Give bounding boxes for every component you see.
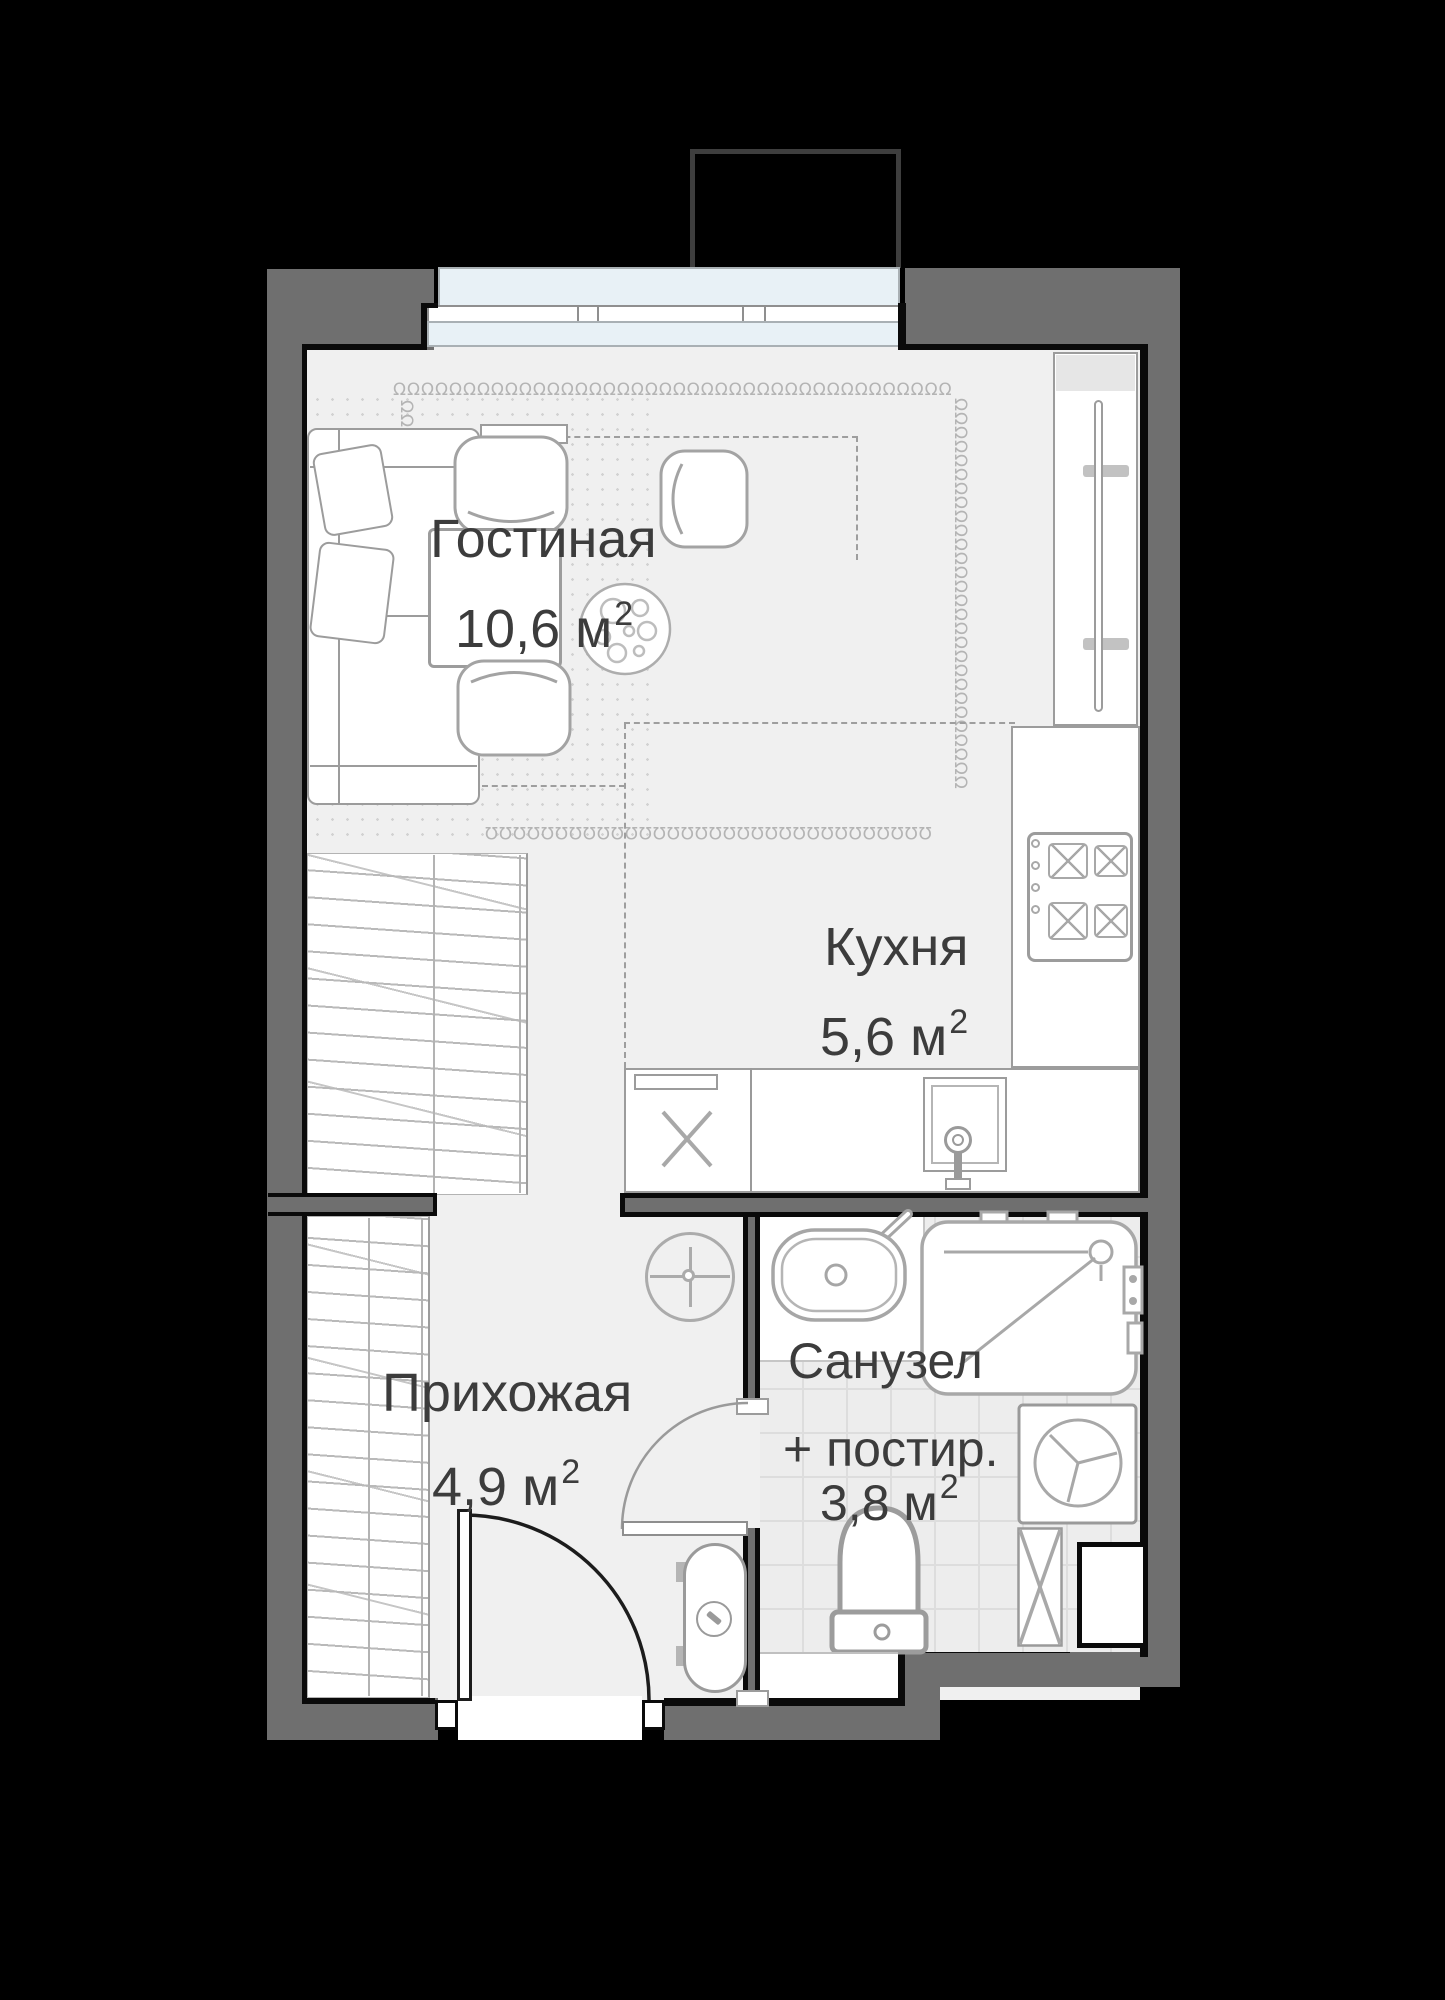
sofa-pillow (308, 541, 395, 646)
wardrobe-edge-line (519, 855, 521, 1193)
room-name: Прихожая (382, 1363, 632, 1423)
window-outer-glass (438, 267, 900, 307)
fridge-handle (1094, 400, 1103, 712)
wall-edge (302, 1698, 435, 1704)
appliance-spot-x (1017, 1527, 1063, 1647)
kitchen-sink-inner (931, 1085, 999, 1164)
wall-left (267, 269, 307, 1738)
window-mullion (577, 306, 579, 322)
stove-knob (1031, 883, 1040, 892)
stove-burner (1048, 843, 1088, 879)
window-inner-glass (427, 321, 905, 347)
stove-knob (1031, 905, 1040, 914)
curtain-loops-right: ΩΩΩΩΩΩΩΩΩΩΩΩΩΩΩΩΩΩΩΩΩΩΩΩΩΩΩΩ (938, 398, 968, 828)
living-room-label: Гостиная (430, 508, 657, 570)
area-superscript: 2 (940, 1468, 959, 1506)
stove-knob (1031, 861, 1040, 870)
wall-bath-upper (743, 1217, 760, 1405)
room-name: Санузел (788, 1333, 983, 1389)
hallway-area: 4,9 м2 (432, 1456, 580, 1518)
bathroom-sink (768, 1210, 918, 1327)
chair-bottom (455, 658, 573, 758)
wall-edge (1140, 344, 1148, 1657)
wardrobe-divider (433, 855, 435, 1193)
wall-edge (421, 303, 438, 308)
window-mullion (597, 306, 599, 322)
curtain-loops-top: ΩΩΩΩΩΩΩΩΩΩΩΩΩΩΩΩΩΩΩΩΩΩΩΩΩΩΩΩΩΩΩΩΩΩΩΩΩΩΩΩ (393, 382, 957, 408)
appliance-drawer (634, 1074, 718, 1090)
stove-burner (1094, 904, 1128, 938)
chair-right (658, 448, 750, 550)
balcony-outline (690, 149, 901, 268)
door-jamb (736, 1690, 769, 1707)
kitchen-area: 5,6 м2 (820, 1006, 968, 1068)
window-mullion (742, 306, 744, 322)
area-superscript: 2 (614, 595, 633, 633)
bathroom-area: 3,8 м2 (820, 1474, 959, 1532)
zone-dashed-line (624, 723, 626, 1068)
zone-dashed-line (482, 785, 625, 787)
wall-bottom-right (898, 1647, 1180, 1687)
living-room-area: 10,6 м2 (455, 598, 633, 660)
kitchen-faucet-base (945, 1178, 971, 1190)
zone-dashed-line (856, 436, 858, 560)
entrance-door-leaf (457, 1509, 472, 1701)
kitchen-faucet-dot (952, 1134, 964, 1146)
kitchen-label: Кухня (824, 916, 969, 978)
sofa-pillow (311, 443, 395, 538)
wall-edge (898, 1652, 905, 1704)
room-name: Гостиная (430, 509, 657, 569)
wardrobe-upper (307, 853, 528, 1195)
room-name: Кухня (824, 917, 969, 977)
fridge-handle-mount (1083, 638, 1129, 650)
stove-burner (1048, 902, 1088, 940)
wall-edge (905, 344, 1148, 350)
area-superscript: 2 (949, 1003, 968, 1041)
wall-edge (302, 344, 427, 350)
bath-floor-niche (760, 1652, 898, 1698)
wall-edge (421, 303, 427, 350)
wardrobe-divider (368, 1218, 370, 1696)
appliance-x-mark (659, 1108, 715, 1170)
stove-burner (1094, 845, 1128, 877)
wall-bottom-left (267, 1698, 438, 1740)
zone-dashed-line (624, 722, 1015, 724)
ceiling-light-dot (682, 1269, 695, 1282)
hallway-label: Прихожая (382, 1362, 632, 1424)
wall-stub-wardrobe (268, 1193, 437, 1216)
washing-machine (1017, 1403, 1138, 1525)
duct-shaft (1077, 1542, 1148, 1648)
bathroom-label: Санузел (788, 1332, 983, 1390)
wall-top-right (905, 268, 1180, 350)
bathroom-label-line2: + постир. (783, 1420, 999, 1478)
wall-edge (664, 1698, 905, 1706)
floor-plan-canvas: ΩΩΩΩΩΩΩΩΩΩΩΩΩΩΩΩΩΩΩΩΩΩΩΩΩΩΩΩΩΩΩΩΩΩΩΩΩΩΩΩ… (0, 0, 1445, 2000)
fridge-handle-mount (1083, 465, 1129, 477)
window-mullion (764, 306, 766, 322)
wardrobe-edge-line (421, 1218, 423, 1696)
stove-knob (1031, 839, 1040, 848)
wall-edge (898, 303, 906, 350)
area-superscript: 2 (561, 1453, 580, 1491)
fridge-top-shade (1056, 355, 1135, 391)
curtain-loops-bottom: ΩΩΩΩΩΩΩΩΩΩΩΩΩΩΩΩΩΩΩΩΩΩΩΩΩΩΩΩΩΩΩΩ (485, 814, 959, 840)
